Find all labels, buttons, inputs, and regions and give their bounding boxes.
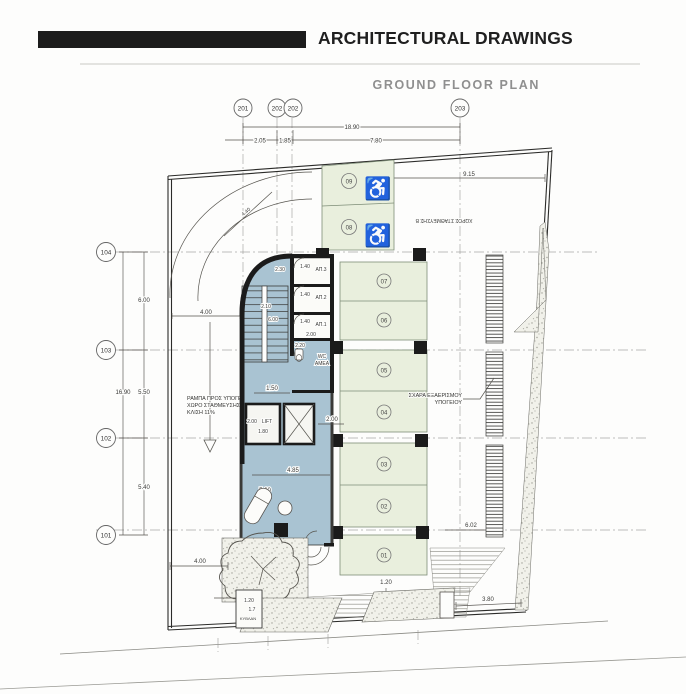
room-label-ap3: ΑΠ.3 — [315, 267, 326, 273]
road-lines — [0, 621, 686, 689]
grid-bubble-202b: 202 — [288, 106, 299, 113]
vent-note-line1: ΣΧΑΡΑ ΕΞΑΕΡΙΣΜΟΥ — [409, 393, 463, 399]
ramp-width-dim: 4.00 — [200, 310, 212, 316]
column — [413, 248, 426, 261]
building-core: 1.40 ΑΠ.3 1.40 ΑΠ.2 1.40 ΑΠ.1 2.30 2.10 … — [240, 254, 344, 565]
room-divider — [292, 338, 332, 341]
stall-number-03: 03 — [381, 463, 388, 469]
left-dim-b: 5.50 — [138, 390, 150, 396]
entry-dim: 3.80 — [482, 597, 494, 603]
left-dim-a: 6.00 — [138, 298, 150, 304]
ramp-note-line2: ΧΩΡΟ ΣΤΑΘΜΕΥΣΗΣ — [187, 403, 241, 409]
room-label-ap2: ΑΠ.2 — [315, 295, 326, 301]
driveway-hatch — [430, 548, 505, 594]
rooms-top-wall — [292, 254, 334, 258]
vent-note-line2: ΥΠΟΓΕΙΟΥ — [435, 400, 463, 406]
stall-number-06: 06 — [381, 319, 388, 325]
room-divider — [292, 284, 332, 287]
room-width-dim: 1.40 — [300, 319, 310, 325]
wc-label-2: ΑΜΕΑ — [315, 361, 330, 367]
entry-pillar — [440, 592, 454, 618]
top-dim-a: 2.05 — [254, 139, 266, 145]
stall-number-07: 07 — [381, 280, 388, 286]
left-grid: 104 103 102 101 16.90 6.00 5.50 5.40 — [97, 243, 151, 545]
title-bar-block — [38, 31, 306, 48]
wc-depth-dim: 2.20 — [295, 343, 305, 349]
column — [415, 434, 428, 447]
grid-bubble-102: 102 — [101, 436, 112, 443]
vent-dim: 6.02 — [465, 523, 477, 529]
stall-number-01: 01 — [381, 554, 388, 560]
side-table — [278, 501, 292, 515]
ramp-note-line1: ΡΑΜΠΑ ΠΡΟΣ ΥΠΟΓΕΙΟ — [187, 396, 247, 402]
room-width-dim: 1.40 — [300, 292, 310, 298]
entry-gate: 1.20 1.7 ΚΥΒΛΑΝ — [214, 590, 262, 628]
left-overall-dim: 16.90 — [115, 390, 131, 396]
left-dim-c: 5.40 — [138, 485, 150, 491]
top-overall-dim: 18.90 — [344, 125, 360, 131]
stall-number-09: 09 — [346, 180, 353, 186]
front-dim: 4.00 — [194, 559, 206, 565]
stair-dim-c: 6.00 — [268, 317, 278, 323]
parking-area-label: ΧΩΡΟΣ ΣΤΑΘΜΕΥΣΗΣ Β — [415, 217, 473, 223]
room-label-ap1: ΑΠ.1 — [315, 322, 326, 328]
ramp-diag-dim: 4.40 — [241, 207, 252, 218]
stall-number-05: 05 — [381, 369, 388, 375]
gate-dim-a: 1.20 — [244, 598, 254, 604]
lift-depth-dim: 1.80 — [258, 429, 268, 435]
ramp-note-line3: ΚΛΙΣΗ 11% — [187, 410, 215, 416]
grid-bubble-203: 203 — [455, 106, 466, 113]
right-wall-lower — [331, 393, 334, 545]
wheelchair-icon: ♿ — [364, 223, 391, 248]
stall-number-08: 08 — [346, 226, 353, 232]
wc-width-dim: 2.00 — [306, 332, 316, 338]
wheelchair-icon: ♿ — [364, 176, 391, 201]
plan-subtitle: GROUND FLOOR PLAN — [373, 78, 540, 92]
sheet-title: ARCHITECTURAL DRAWINGS — [318, 28, 573, 49]
wc-label: WC — [318, 354, 327, 360]
accessible-stalls: 09 ♿ 08 ♿ — [322, 160, 394, 250]
top-dim-b: 1.85 — [279, 139, 291, 145]
stall-number-02: 02 — [381, 505, 388, 511]
ramp-direction-arrow — [204, 440, 216, 452]
drawing-sheet: ARCHITECTURAL DRAWINGS GROUND FLOOR PLAN — [0, 0, 686, 694]
right-wall-upper — [330, 256, 334, 393]
gate-label: ΚΥΒΛΑΝ — [240, 616, 256, 621]
left-wall-lower — [240, 464, 243, 545]
left-wall — [240, 314, 245, 464]
stall-number-04: 04 — [381, 411, 388, 417]
column — [416, 526, 429, 539]
lobby-width-dim: 4.85 — [287, 468, 299, 474]
room-divider — [292, 312, 332, 315]
stair-dim-b: 2.10 — [261, 304, 271, 310]
open-parking-area: 9.15 ΧΩΡΟΣ ΣΤΑΘΜΕΥΣΗΣ Β — [393, 172, 545, 223]
grid-bubble-201: 201 — [238, 106, 249, 113]
floor-plan: 4.40 4.00 ΡΑΜΠΑ ΠΡΟΣ ΥΠΟΓΕΙΟ ΧΩΡΟ ΣΤΑΘΜΕ… — [0, 0, 686, 694]
planter — [222, 538, 308, 602]
column — [414, 341, 427, 354]
wc-divider — [292, 390, 332, 393]
grid-bubble-101: 101 — [101, 533, 112, 540]
stall-width-dim: 1.20 — [380, 580, 392, 586]
faint-divider-line — [80, 63, 640, 65]
shaft-dim: 2.00 — [326, 417, 338, 423]
corridor-dim: 1.50 — [266, 386, 278, 392]
bottom-wall — [324, 543, 334, 547]
top-right-dim: 9.15 — [463, 172, 475, 178]
top-dim-c: 7.80 — [370, 139, 382, 145]
staircase — [242, 286, 288, 362]
lift-label: LIFT — [262, 419, 272, 425]
grid-bubble-104: 104 — [101, 250, 112, 257]
top-grid: 201 202 202 203 18.90 2.05 1.85 7.80 — [225, 99, 469, 145]
stair-dim-a: 2.30 — [275, 267, 285, 273]
grid-bubble-202a: 202 — [272, 106, 283, 113]
room-width-dim: 1.40 — [300, 264, 310, 270]
grid-bubble-103: 103 — [101, 348, 112, 355]
lift-width-dim: 2.00 — [247, 419, 257, 425]
gate-dim-b: 1.7 — [249, 607, 256, 613]
